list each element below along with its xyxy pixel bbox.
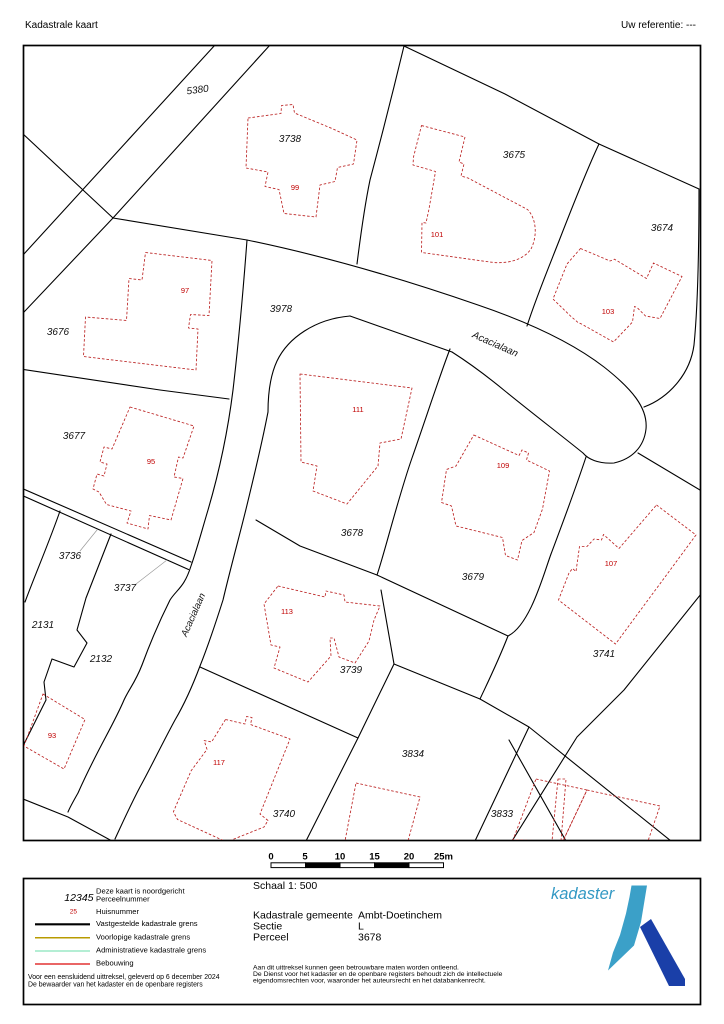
svg-text:12345: 12345 xyxy=(64,892,93,904)
svg-text:3736: 3736 xyxy=(59,551,82,562)
svg-text:eigendomsrechten voor, waarond: eigendomsrechten voor, waaronder het aut… xyxy=(253,978,486,985)
svg-text:99: 99 xyxy=(291,183,299,192)
svg-text:109: 109 xyxy=(497,461,510,470)
svg-text:95: 95 xyxy=(147,457,155,466)
svg-text:20: 20 xyxy=(404,852,415,863)
svg-text:3677: 3677 xyxy=(63,431,86,442)
svg-text:25: 25 xyxy=(70,909,78,916)
svg-text:3833: 3833 xyxy=(491,809,514,820)
svg-text:3674: 3674 xyxy=(651,223,674,234)
svg-text:3737: 3737 xyxy=(114,583,137,594)
svg-text:Schaal 1: 500: Schaal 1: 500 xyxy=(253,880,317,892)
svg-text:111: 111 xyxy=(352,405,363,414)
svg-text:3740: 3740 xyxy=(273,809,296,820)
svg-text:Bebouwing: Bebouwing xyxy=(96,959,134,968)
svg-text:0: 0 xyxy=(268,852,273,863)
svg-text:113: 113 xyxy=(281,607,293,616)
svg-text:3678: 3678 xyxy=(358,932,382,944)
svg-text:3834: 3834 xyxy=(402,749,425,760)
svg-text:De bewaarder van het kadaster: De bewaarder van het kadaster en de open… xyxy=(28,982,203,989)
svg-text:3679: 3679 xyxy=(462,572,485,583)
svg-text:117: 117 xyxy=(213,758,225,767)
svg-text:15: 15 xyxy=(369,852,380,863)
svg-text:3739: 3739 xyxy=(340,665,363,676)
svg-text:101: 101 xyxy=(431,230,444,239)
svg-text:Huisnummer: Huisnummer xyxy=(96,907,140,916)
svg-text:Vastgestelde kadastrale grens: Vastgestelde kadastrale grens xyxy=(96,919,198,928)
svg-text:Voorlopige kadastrale grens: Voorlopige kadastrale grens xyxy=(96,933,190,942)
svg-text:10: 10 xyxy=(335,852,346,863)
svg-text:kadaster: kadaster xyxy=(551,885,616,903)
svg-text:5380: 5380 xyxy=(186,83,210,97)
svg-text:107: 107 xyxy=(605,559,618,568)
svg-text:97: 97 xyxy=(181,286,189,295)
svg-text:3738: 3738 xyxy=(279,134,302,145)
svg-text:Acacialaan: Acacialaan xyxy=(179,592,208,640)
svg-text:3678: 3678 xyxy=(341,528,364,539)
svg-text:Perceel: Perceel xyxy=(253,932,289,944)
svg-text:Acacialaan: Acacialaan xyxy=(470,329,520,360)
svg-text:25m: 25m xyxy=(434,852,453,863)
svg-text:93: 93 xyxy=(48,731,56,740)
svg-text:3675: 3675 xyxy=(503,150,526,161)
svg-text:3676: 3676 xyxy=(47,327,70,338)
svg-text:Voor een eensluidend uittrekse: Voor een eensluidend uittreksel, gelever… xyxy=(28,974,220,981)
svg-text:Administratieve kadastrale gre: Administratieve kadastrale grens xyxy=(96,946,206,955)
svg-text:5: 5 xyxy=(302,852,308,863)
svg-text:3978: 3978 xyxy=(270,304,293,315)
svg-text:2132: 2132 xyxy=(89,654,113,665)
svg-text:Perceelnummer: Perceelnummer xyxy=(96,895,150,904)
svg-text:Ambt-Doetinchem: Ambt-Doetinchem xyxy=(358,910,442,922)
svg-text:103: 103 xyxy=(602,307,615,316)
svg-text:3741: 3741 xyxy=(593,649,615,660)
svg-text:2131: 2131 xyxy=(31,620,54,631)
